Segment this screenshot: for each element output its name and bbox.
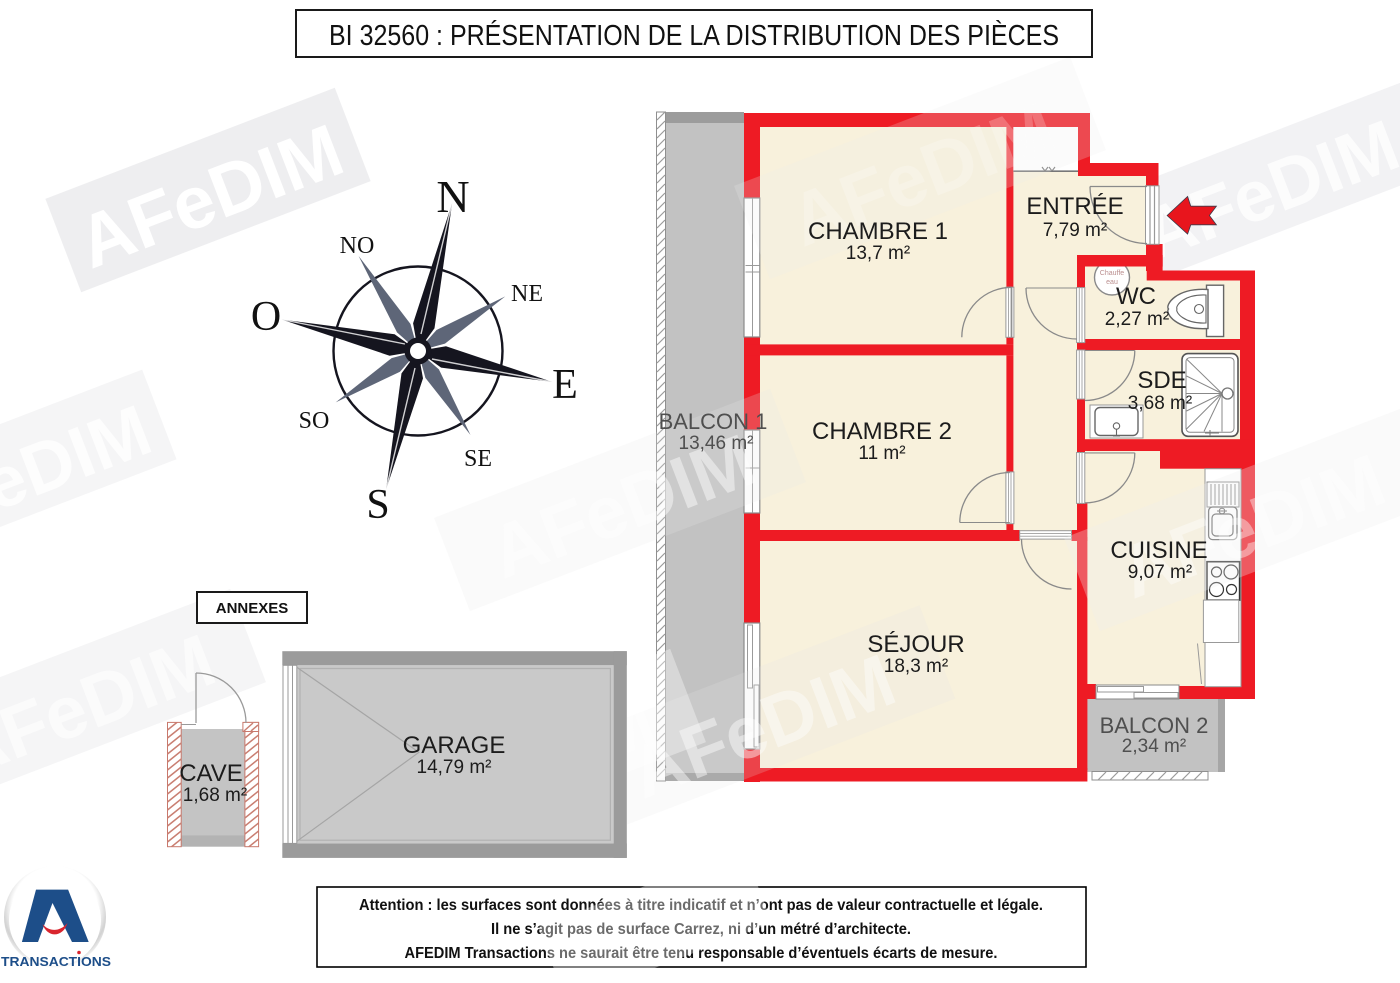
svg-text:SO: SO: [299, 408, 330, 434]
svg-text:CUISINE: CUISINE: [1110, 537, 1207, 564]
svg-text:1,68 m²: 1,68 m²: [183, 785, 247, 806]
svg-text:N: N: [436, 171, 469, 222]
svg-text:WC: WC: [1116, 283, 1156, 310]
svg-text:13,46 m²: 13,46 m²: [679, 433, 754, 454]
svg-text:3,68 m²: 3,68 m²: [1128, 393, 1192, 414]
svg-text:E: E: [552, 362, 578, 408]
svg-text:NO: NO: [340, 233, 375, 259]
svg-text:18,3 m²: 18,3 m²: [884, 656, 948, 677]
svg-text:2,27 m²: 2,27 m²: [1105, 309, 1169, 330]
svg-text:BALCON 2: BALCON 2: [1100, 713, 1209, 738]
svg-text:GARAGE: GARAGE: [403, 732, 506, 759]
svg-text:O: O: [251, 294, 281, 340]
svg-text:14,79 m²: 14,79 m²: [417, 757, 492, 778]
svg-text:9,07 m²: 9,07 m²: [1128, 562, 1192, 583]
svg-text:S: S: [366, 482, 389, 528]
svg-text:Chauffe: Chauffe: [1100, 270, 1124, 277]
svg-text:SE: SE: [464, 446, 492, 472]
svg-text:BALCON 1: BALCON 1: [659, 409, 768, 434]
svg-text:SÉJOUR: SÉJOUR: [867, 631, 964, 658]
svg-text:TRANSACTIONS: TRANSACTIONS: [1, 954, 111, 969]
svg-text:ENTRÉE: ENTRÉE: [1026, 193, 1123, 220]
svg-text:CAVE: CAVE: [179, 760, 243, 787]
svg-text:13,7 m²: 13,7 m²: [846, 243, 910, 264]
svg-text:2,34 m²: 2,34 m²: [1122, 736, 1186, 757]
svg-text:ANNEXES: ANNEXES: [216, 600, 289, 617]
svg-text:SDE: SDE: [1137, 367, 1186, 394]
svg-text:CHAMBRE 1: CHAMBRE 1: [808, 218, 948, 245]
svg-text:BI 32560 : PRÉSENTATION DE LA: BI 32560 : PRÉSENTATION DE LA DISTRIBUTI…: [329, 19, 1059, 52]
svg-text:11 m²: 11 m²: [858, 443, 905, 464]
svg-text:7,79 m²: 7,79 m²: [1043, 220, 1107, 241]
svg-text:CHAMBRE 2: CHAMBRE 2: [812, 418, 952, 445]
svg-text:NE: NE: [511, 281, 543, 307]
